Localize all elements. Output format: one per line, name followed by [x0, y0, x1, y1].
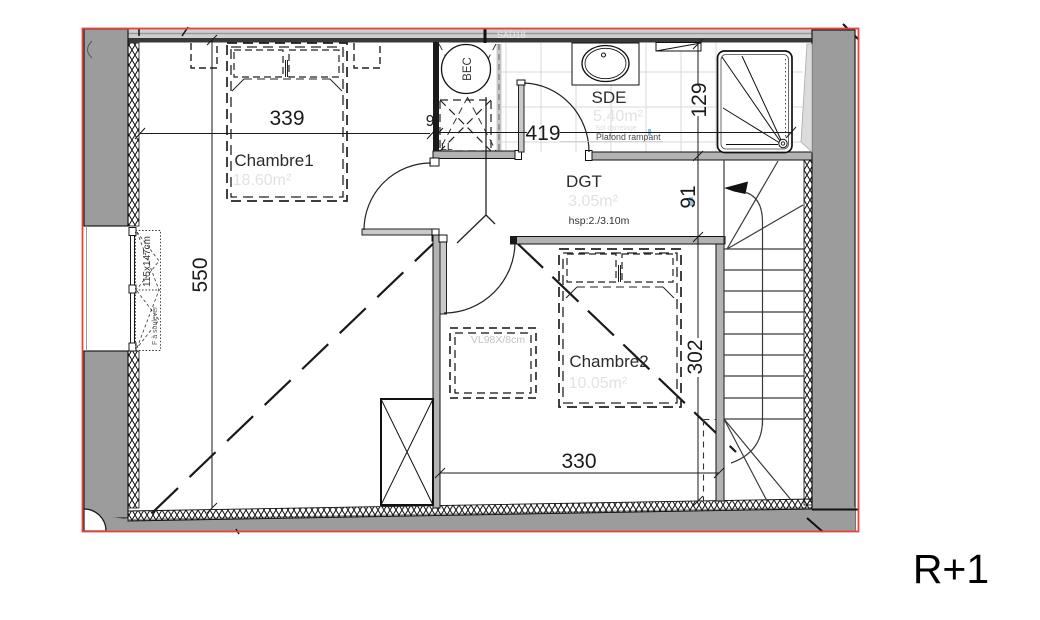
svg-text:10.05m²: 10.05m²	[569, 375, 628, 392]
svg-text:VL98X/8cm: VL98X/8cm	[471, 334, 526, 346]
svg-text:330: 330	[561, 450, 596, 473]
svg-text:550: 550	[189, 257, 212, 292]
svg-text:9: 9	[426, 113, 435, 130]
svg-text:115x147cm: 115x147cm	[142, 236, 153, 287]
svg-text:SDE: SDE	[592, 88, 627, 107]
svg-text:Chambre1: Chambre1	[234, 151, 313, 170]
svg-text:DGT: DGT	[566, 172, 602, 191]
svg-text:Chambre2: Chambre2	[569, 352, 648, 371]
svg-text:3.05m²: 3.05m²	[568, 193, 618, 210]
svg-text:R+1: R+1	[913, 546, 989, 592]
svg-text:F à soulever: F à soulever	[152, 306, 159, 345]
svg-text:SAD18: SAD18	[497, 30, 526, 40]
svg-text:302: 302	[684, 339, 707, 374]
svg-text:Plafond rampant: Plafond rampant	[596, 132, 661, 142]
svg-text:91: 91	[677, 185, 700, 208]
svg-text:Sol carrelage: Sol carrelage	[595, 125, 636, 132]
svg-text:419: 419	[525, 122, 560, 145]
svg-text:18.60m²: 18.60m²	[233, 172, 292, 189]
svg-text:hsp:2./3.10m: hsp:2./3.10m	[569, 215, 630, 227]
svg-text:5.40m²: 5.40m²	[593, 108, 643, 125]
svg-text:129: 129	[688, 82, 711, 117]
svg-text:339: 339	[269, 107, 304, 130]
svg-text:BEC: BEC	[462, 57, 474, 81]
